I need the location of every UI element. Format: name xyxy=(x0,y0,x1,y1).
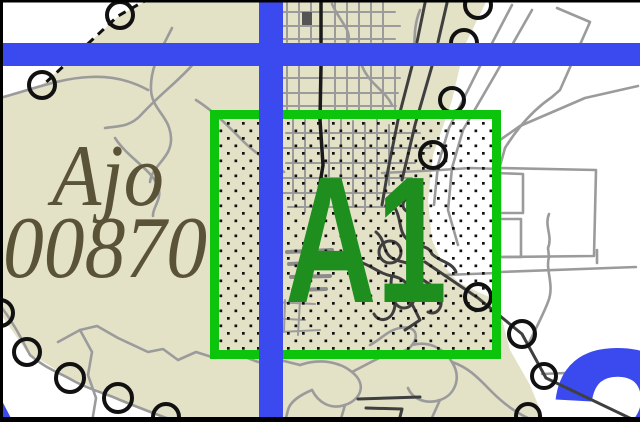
grid-line-horizontal xyxy=(0,43,640,66)
map-viewport: 2 Ajo 00870 A1 xyxy=(0,0,640,422)
adjacent-cell-label: 2 xyxy=(545,294,640,422)
selected-cell-label: A1 xyxy=(285,140,447,341)
map-canvas[interactable]: 2 Ajo 00870 A1 xyxy=(0,0,640,422)
grid-line-vertical xyxy=(259,0,283,422)
place-code-label: 00870 xyxy=(3,200,207,297)
